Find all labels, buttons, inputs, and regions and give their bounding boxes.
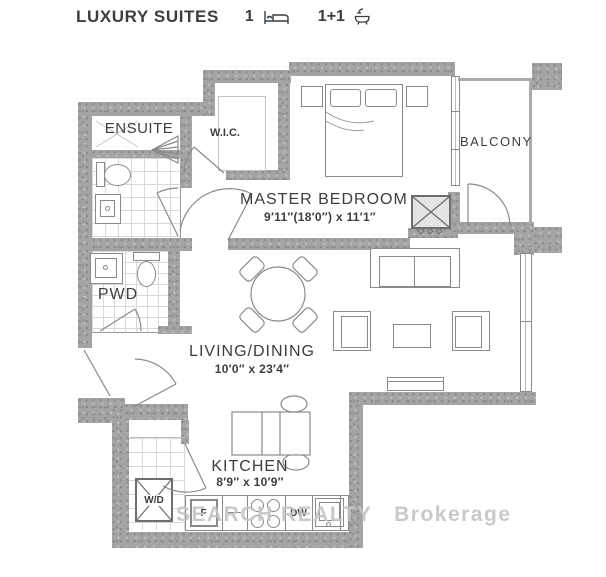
- dining-set: [238, 255, 319, 334]
- watermark: SEARCH REALTY Brokerage: [176, 503, 512, 527]
- watermark-text: SEARCH REALTY: [176, 503, 372, 526]
- bathroom-count: 1+1: [318, 8, 345, 26]
- sofa-seat: [379, 256, 451, 287]
- wall-living-bottom: [349, 392, 536, 405]
- wall-block-top-right: [532, 63, 562, 90]
- bedroom-count: 1: [245, 8, 254, 26]
- page-title: LUXURY SUITES: [76, 7, 219, 27]
- master-bedroom-label: MASTER BEDROOM: [240, 191, 400, 209]
- armchair-left-seat: [341, 316, 368, 348]
- entry-door: [84, 350, 110, 396]
- ensuite-label: ENSUITE: [94, 120, 184, 137]
- dining-chair: [291, 255, 319, 283]
- wall-balcony-bottom: [453, 222, 534, 234]
- tv-console: [387, 377, 444, 391]
- wall-pwd-bottom-stub: [158, 326, 192, 334]
- pillow: [365, 89, 397, 107]
- bath-icon: [354, 8, 371, 27]
- wall-ensuite-divider: [92, 150, 180, 158]
- bed-icon: [263, 9, 290, 26]
- kitchen-label: KITCHEN: [195, 458, 305, 476]
- kitchen-dimensions: 8′9″ x 10′9″: [195, 475, 305, 489]
- balcony-railing-top: [458, 78, 532, 81]
- pwd-toilet-bowl: [137, 261, 156, 287]
- hvac-unit: [411, 195, 451, 229]
- window-glass-line: [525, 254, 526, 391]
- dining-table: [251, 267, 305, 321]
- floor-plan-page: LUXURY SUITES 1 1+1: [0, 0, 606, 577]
- wall-pwd-right: [168, 251, 180, 333]
- tv-console-line: [388, 381, 443, 382]
- balcony-door: [468, 184, 510, 226]
- wall-block-bottom-right: [534, 227, 562, 253]
- wall-entry-jog: [125, 404, 188, 420]
- kitchen-table: [232, 412, 310, 455]
- living-room-window: [520, 253, 532, 392]
- dining-chair: [238, 306, 266, 334]
- plan-header: LUXURY SUITES 1 1+1: [76, 7, 371, 27]
- wall-left-lower: [112, 408, 129, 548]
- wall-ensuite-top: [78, 102, 215, 116]
- living-dining-label: LIVING/DINING: [172, 343, 332, 361]
- kitchen-hall-door: [135, 359, 176, 406]
- wall-pwd-top: [92, 238, 192, 251]
- window-glass-line: [455, 77, 456, 185]
- washer-dryer-label: W/D: [135, 478, 173, 522]
- wic-label: W.I.C.: [200, 127, 250, 139]
- wall-wic-left-upper: [203, 70, 215, 116]
- sofa-cushion-divider: [414, 256, 415, 287]
- dining-chair: [238, 255, 266, 283]
- nightstand-left: [301, 86, 323, 107]
- nightstand-right: [406, 86, 428, 107]
- wall-wic-right: [278, 83, 290, 180]
- closet-shelf-line: [128, 437, 185, 438]
- wall-bedroom-top: [289, 62, 455, 76]
- ensuite-sink-drain: [105, 206, 110, 211]
- pwd-label: PWD: [94, 286, 142, 304]
- master-bedroom-dimensions: 9′11″(18′0″) x 11′1″: [240, 210, 400, 224]
- living-dining-dimensions: 10′0″ x 23′4″: [172, 362, 332, 376]
- window-mullion: [451, 111, 460, 112]
- kitchen-chair: [281, 396, 307, 412]
- watermark-text: Brokerage: [394, 503, 511, 526]
- window-mullion: [451, 149, 460, 150]
- wall-left-upper: [78, 102, 92, 348]
- dining-chair: [291, 306, 319, 334]
- window-mullion: [520, 321, 532, 322]
- wall-closet-stub: [181, 420, 189, 444]
- wall-wic-bottom: [226, 170, 290, 180]
- balcony-label: BALCONY: [460, 134, 532, 149]
- ensuite-toilet-bowl: [104, 164, 131, 186]
- wall-wic-top: [203, 70, 291, 83]
- armchair-right-seat: [455, 316, 482, 348]
- pwd-sink-drain: [103, 265, 108, 270]
- balcony-railing-right: [529, 78, 532, 224]
- coffee-table: [393, 324, 431, 348]
- pillow: [330, 89, 361, 107]
- wall-bottom: [112, 532, 363, 548]
- pwd-toilet-tank: [133, 252, 160, 261]
